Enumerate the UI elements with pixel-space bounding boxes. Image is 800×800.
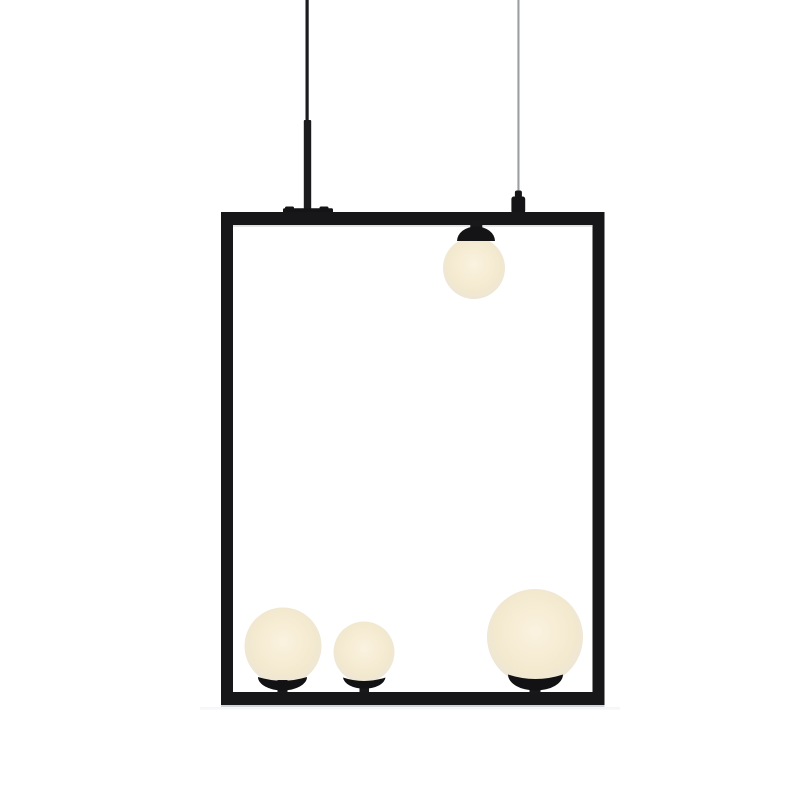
globe-unit-bottom-right <box>487 589 583 694</box>
frame-bottom-bar <box>221 692 605 705</box>
cable-wire <box>517 0 519 196</box>
globe-unit-bottom-left <box>245 608 322 694</box>
cable-fitting-body <box>511 197 525 214</box>
suspension-cable <box>511 0 525 214</box>
product-photo <box>0 0 800 800</box>
frame-top-bar-shadow <box>233 225 592 227</box>
floor-soft-shadow <box>200 707 620 710</box>
frame-bottom-bar-shadow <box>221 705 605 707</box>
globe-bottom-middle <box>334 622 395 683</box>
suspension-rod-thick <box>304 120 311 213</box>
frame-right-bar <box>593 212 605 705</box>
globe-bottom-left <box>245 608 322 685</box>
globe-top-cap <box>457 227 495 242</box>
suspension-rod <box>283 0 333 214</box>
frame-top-bar <box>221 212 605 225</box>
pendant-lamp-illustration <box>0 0 800 800</box>
frame-left-bar <box>221 212 233 705</box>
globe-bottom-right <box>487 589 583 685</box>
suspension-rod-thin <box>306 0 309 122</box>
globe-unit-top <box>443 221 505 299</box>
globe-unit-bottom-middle <box>334 622 395 694</box>
globe-top <box>443 237 505 299</box>
